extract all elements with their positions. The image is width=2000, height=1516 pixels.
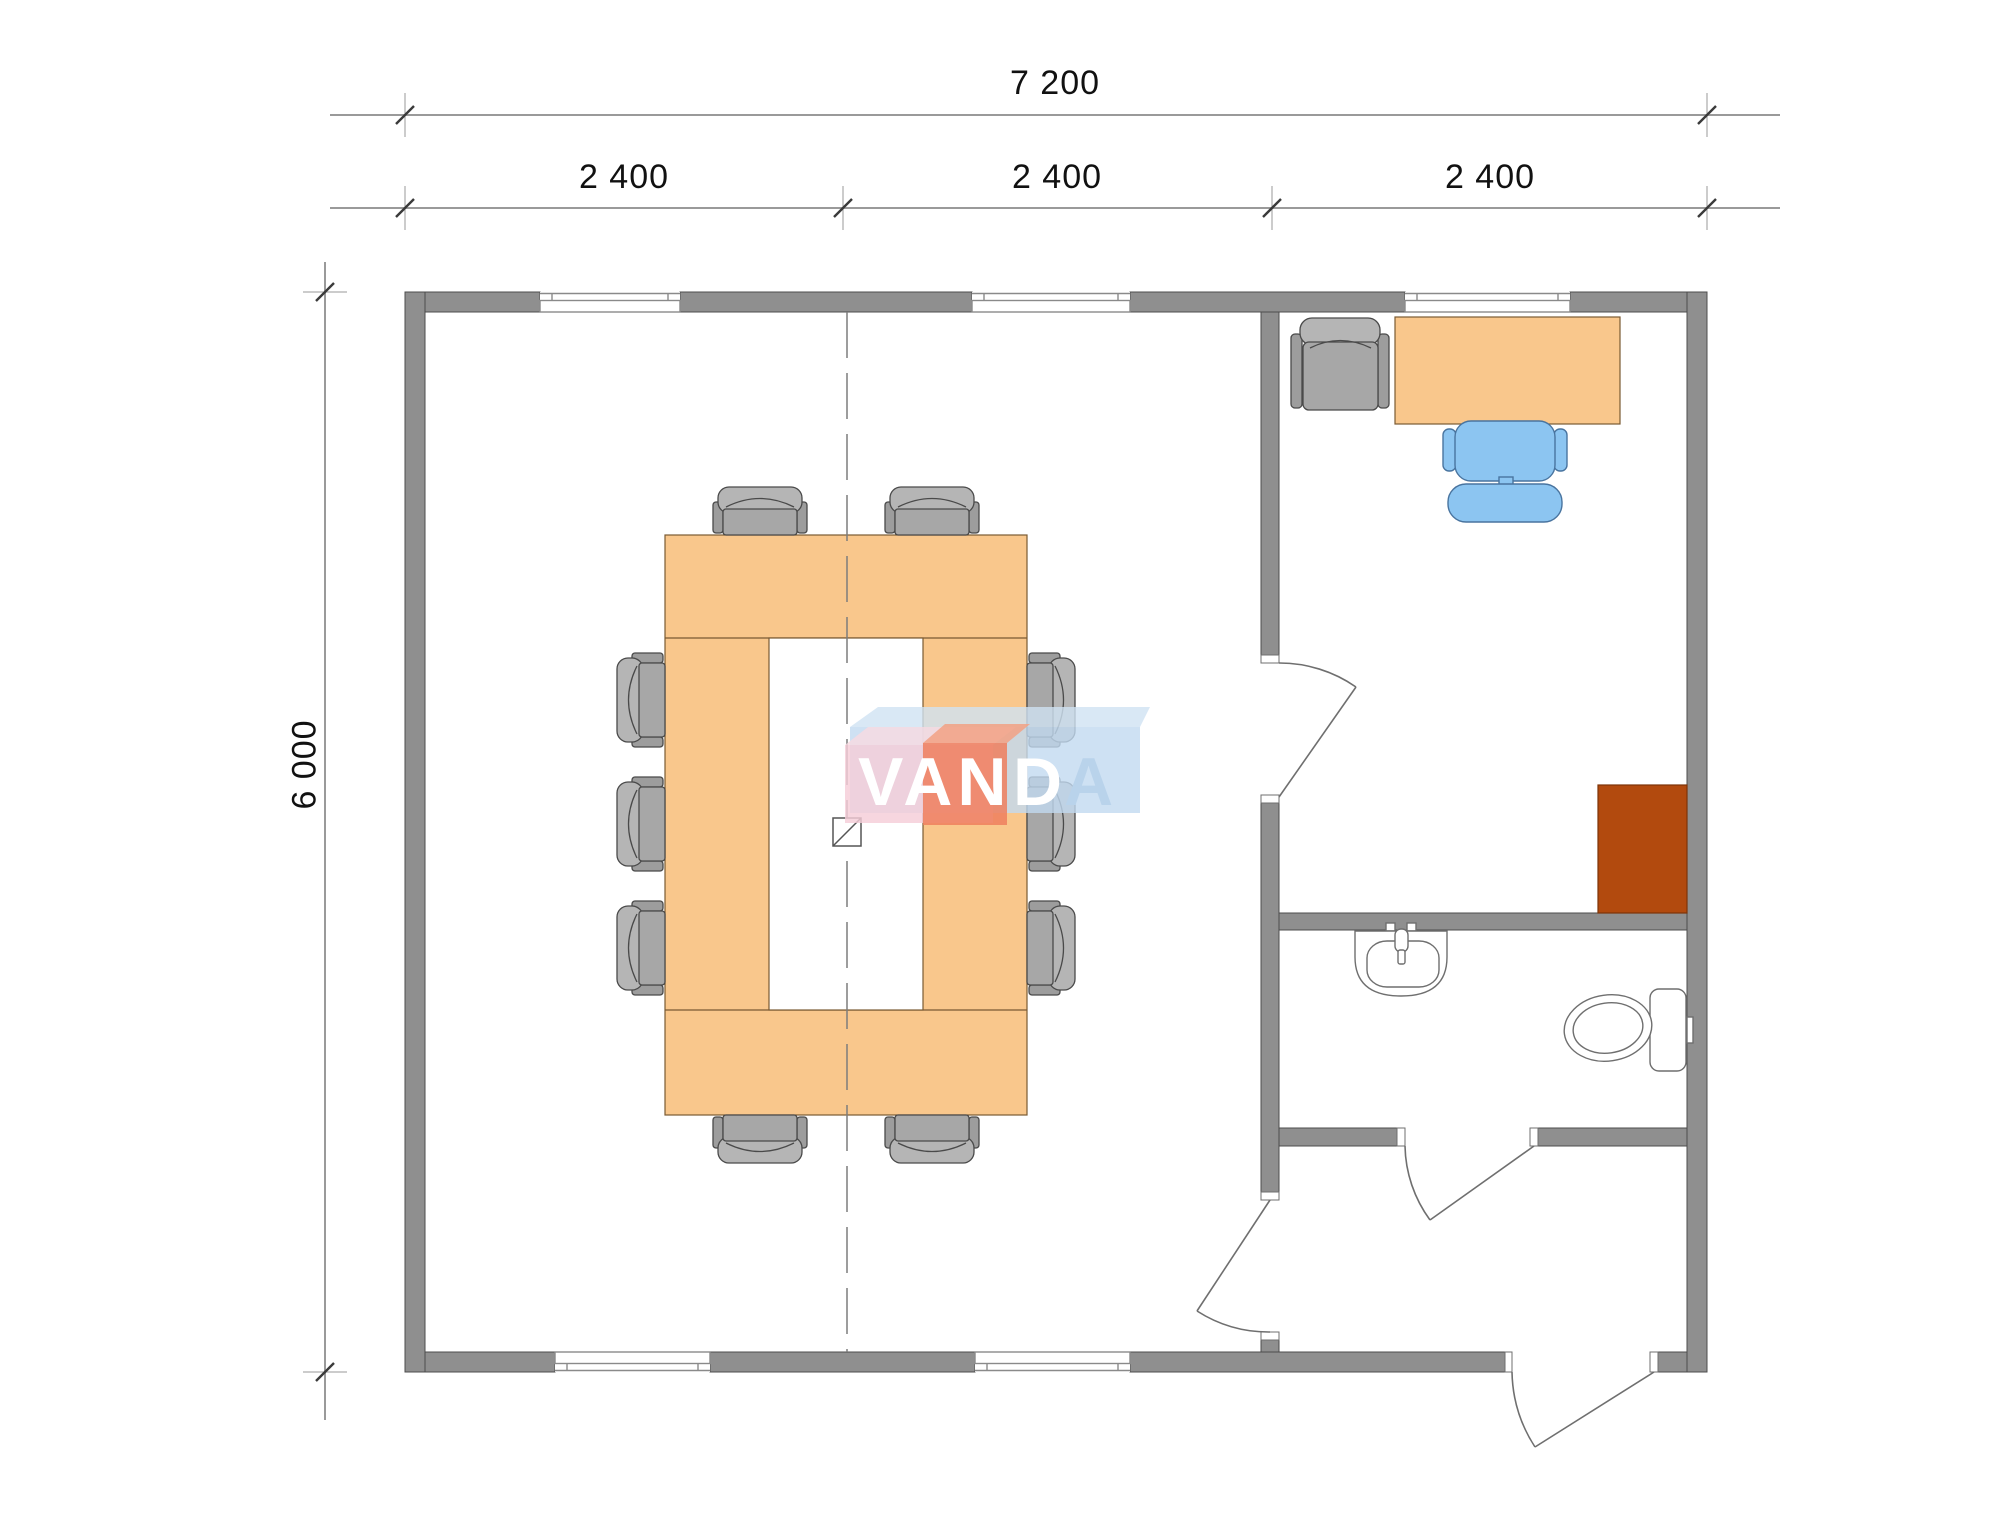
dim-module-1-label: 2 400 <box>524 158 724 197</box>
office-desk <box>1395 317 1620 424</box>
logo-text-van: VAN <box>858 744 1012 820</box>
dim-total-width-label: 7 200 <box>955 64 1155 103</box>
wall-top <box>680 292 972 312</box>
chair <box>885 487 979 535</box>
chair <box>885 1115 979 1163</box>
wall-top <box>1570 292 1707 312</box>
chair <box>713 1115 807 1163</box>
wall-right <box>1687 292 1707 1372</box>
toilet <box>1560 989 1693 1071</box>
chair <box>713 487 807 535</box>
module-centerline <box>833 312 861 1352</box>
window <box>540 292 680 312</box>
vanda-logo: VAN D A <box>845 707 1150 825</box>
door-entrance <box>1512 1372 1654 1447</box>
window <box>1405 292 1570 312</box>
office-cabinet <box>1598 785 1687 913</box>
chair <box>617 653 665 747</box>
door-bathroom <box>1405 1146 1534 1220</box>
wall-interior-vertical <box>1261 803 1279 1192</box>
dim-total-height-label: 6 000 <box>286 665 325 865</box>
wall-left <box>405 292 425 1372</box>
wall-bottom <box>1130 1352 1505 1372</box>
wall-bottom <box>405 1352 555 1372</box>
floor-plan: VAN D A 7 200 2 400 2 400 2 400 6 000 <box>0 0 2000 1516</box>
wall-bottom <box>710 1352 975 1372</box>
window <box>555 1352 710 1372</box>
logo-text: VAN D A <box>858 744 1113 820</box>
chair <box>617 777 665 871</box>
wall-interior-vertical <box>1261 1340 1279 1352</box>
office-visitor-chair <box>1291 318 1389 410</box>
office-chair <box>1443 421 1567 522</box>
door-office <box>1279 663 1356 797</box>
logo-text-a: A <box>1064 744 1113 820</box>
wall-bath-hall <box>1279 1128 1397 1146</box>
chair <box>617 901 665 995</box>
window <box>972 292 1130 312</box>
wall-interior-vertical <box>1261 312 1279 655</box>
wall-office-bath-divider <box>1279 913 1687 930</box>
dim-module-2-label: 2 400 <box>957 158 1157 197</box>
door-meeting-room <box>1197 1200 1270 1332</box>
wall-top <box>1130 292 1405 312</box>
window <box>975 1352 1130 1372</box>
dim-module-3-label: 2 400 <box>1390 158 1590 197</box>
chair <box>1027 901 1075 995</box>
logo-text-d: D <box>1013 744 1062 820</box>
wall-bath-hall <box>1538 1128 1687 1146</box>
sink <box>1355 923 1447 996</box>
